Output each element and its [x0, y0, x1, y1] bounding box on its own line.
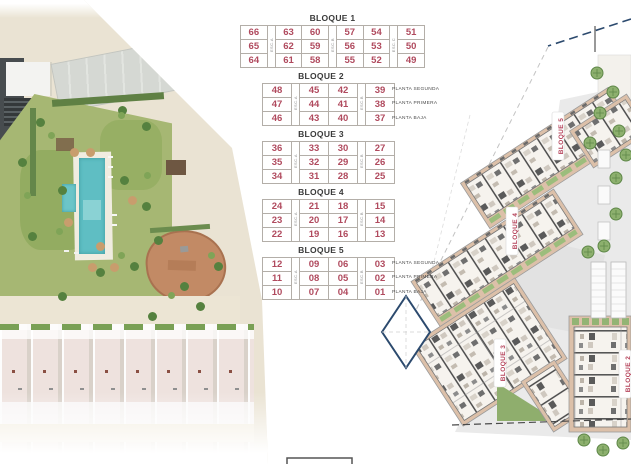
unit-number-cell: 10: [263, 286, 292, 300]
unit-number-cell: 62: [275, 40, 302, 54]
unit-number-cell: 25: [366, 170, 395, 184]
palm-trees: [36, 118, 45, 127]
plan-bloque-2-label: BLOQUE 2: [625, 356, 631, 392]
trees: [578, 67, 631, 456]
unit-number-cell: 55: [336, 54, 363, 68]
plot-boundary-dashed: [432, 115, 470, 270]
unit-number-cell: 13: [366, 228, 395, 242]
stair-column: ESC.B: [358, 258, 366, 300]
unit-number-cell: 53: [363, 40, 390, 54]
unit-number-cell: 47: [263, 98, 292, 112]
unit-number-cell: 17: [329, 214, 358, 228]
stair-label: ESC.A: [268, 38, 275, 52]
unit-number-cell: 42: [329, 84, 358, 98]
stair-column: ESC.C: [390, 26, 398, 68]
unit-number-cell: 30: [329, 142, 358, 156]
palm-trees: [48, 132, 55, 139]
unit-number-cell: 39: [366, 84, 395, 98]
unit-number-cell: 44: [300, 98, 329, 112]
floor-label: PLANTA PRIMERA: [392, 271, 439, 285]
stair-column: ESC.A: [292, 84, 300, 126]
unit-number-cell: 63: [275, 26, 302, 40]
stair-label: ESC.B: [358, 154, 365, 168]
unit-number-cell: 29: [329, 156, 358, 170]
floor-labels: PLANTA SEGUNDAPLANTA PRIMERAPLANTA BAJA: [392, 257, 439, 300]
parking-area: [591, 150, 626, 318]
unit-number-cell: 27: [366, 142, 395, 156]
unit-number-cell: 08: [300, 272, 329, 286]
stair-label: ESC.C: [390, 38, 397, 52]
bloque-table-group: BLOQUE 336ESC.A3330ESC.B2735322926343128…: [240, 129, 425, 184]
stair-label: ESC.A: [292, 270, 299, 284]
roads: [455, 55, 631, 440]
unit-number-cell: 23: [263, 214, 292, 228]
hedges: [572, 318, 629, 325]
plot-diamond: [382, 296, 430, 368]
floor-labels: PLANTA SEGUNDAPLANTA PRIMERAPLANTA BAJA: [392, 83, 439, 126]
aerial-render: [0, 0, 270, 464]
unit-number-cell: 32: [300, 156, 329, 170]
unit-number-cell: 19: [300, 228, 329, 242]
unit-number-cell: 48: [263, 84, 292, 98]
parasols: [70, 148, 79, 157]
unit-number-cell: 45: [300, 84, 329, 98]
unit-number-cell: 59: [302, 40, 329, 54]
unit-number-cell: 64: [241, 54, 268, 68]
bloque-3-building: [411, 278, 567, 426]
unit-number-cell: 40: [329, 112, 358, 126]
unit-number-cell: 28: [329, 170, 358, 184]
bloque-table-group: BLOQUE 424ESC.A2118ESC.B1523201714221916…: [240, 187, 425, 242]
building-roof: [6, 62, 52, 96]
stair-label: ESC.A: [292, 212, 299, 226]
stair-label: ESC.B: [329, 38, 336, 52]
bloque-3-wing: [521, 360, 587, 432]
plot-rectangle: [287, 458, 352, 464]
bloque-unit-table: 12ESC.A0906ESC.B031108050210070401: [262, 257, 395, 300]
floor-label: PLANTA SEGUNDA: [392, 83, 439, 97]
unit-number-cell: 34: [263, 170, 292, 184]
unit-number-cell: 61: [275, 54, 302, 68]
unit-number-cell: 43: [300, 112, 329, 126]
unit-number-cell: 06: [329, 258, 358, 272]
stair-label: ESC.B: [358, 212, 365, 226]
unit-number-cell: 35: [263, 156, 292, 170]
unit-number-cell: 22: [263, 228, 292, 242]
bloque-title: BLOQUE 3: [262, 129, 380, 141]
unit-number-cell: 20: [300, 214, 329, 228]
pergola: [166, 160, 186, 175]
floor-label: PLANTA BAJA: [392, 112, 439, 126]
stair-column: ESC.B: [358, 84, 366, 126]
unit-number-cell: 24: [263, 200, 292, 214]
bloque-unit-table: 48ESC.A4542ESC.B394744413846434037: [262, 83, 395, 126]
unit-number-cell: 14: [366, 214, 395, 228]
bloque-title: BLOQUE 5: [262, 245, 380, 257]
unit-number-cell: 21: [300, 200, 329, 214]
stair-column: ESC.B: [328, 26, 336, 68]
unit-number-cell: 18: [329, 200, 358, 214]
stair-label: ESC.B: [358, 270, 365, 284]
unit-number-cell: 03: [366, 258, 395, 272]
bloque-title: BLOQUE 2: [262, 71, 380, 83]
stair-label: ESC.B: [358, 96, 365, 110]
plan-bloque-labels: BLOQUE 5 BLOQUE 4 BLOQUE 3 BLOQUE 2: [494, 112, 631, 398]
unit-number-cell: 41: [329, 98, 358, 112]
bloque-table-group: BLOQUE 512ESC.A0906ESC.B0311080502100704…: [240, 245, 425, 300]
stair-column: ESC.A: [292, 258, 300, 300]
bloque-title: BLOQUE 4: [262, 187, 380, 199]
sand-path: [0, 296, 240, 326]
unit-number-cell: 65: [241, 40, 268, 54]
bloque-5-wing: [570, 94, 631, 168]
bloque-unit-table: 66ESC.A6360ESC.B5754ESC.C516562595653506…: [240, 25, 425, 68]
unit-number-cell: 56: [336, 40, 363, 54]
unit-number-cell: 66: [241, 26, 268, 40]
terrace-furniture: [12, 370, 15, 373]
plan-bloque-5-label: BLOQUE 5: [558, 118, 565, 154]
unit-number-cell: 54: [363, 26, 390, 40]
unit-number-cell: 16: [329, 228, 358, 242]
unit-number-cell: 04: [329, 286, 358, 300]
unit-number-cell: 57: [336, 26, 363, 40]
floor-label: PLANTA PRIMERA: [392, 97, 439, 111]
boundary-line-dashed: [452, 419, 631, 425]
unit-number-cell: 33: [300, 142, 329, 156]
stair-label: ESC.A: [292, 96, 299, 110]
bloque-table-group: BLOQUE 166ESC.A6360ESC.B5754ESC.C5165625…: [240, 13, 425, 68]
unit-number-cell: 51: [398, 26, 425, 40]
bloque-title: BLOQUE 1: [240, 13, 425, 25]
pool-shallow-end: [83, 200, 101, 220]
unit-number-cell: 01: [366, 286, 395, 300]
bloque-unit-table: 36ESC.A3330ESC.B273532292634312825: [262, 141, 395, 184]
unit-number-cell: 31: [300, 170, 329, 184]
bottom-fade: [0, 392, 270, 464]
plan-bloque-3-label: BLOQUE 3: [500, 345, 507, 381]
kids-pool: [62, 184, 76, 212]
unit-number-cell: 37: [366, 112, 395, 126]
site-plan-page: BLOQUE 5 BLOQUE 4 BLOQUE 3 BLOQUE 2 BLOQ…: [0, 0, 631, 464]
bloque-2-building: [569, 316, 631, 432]
unit-number-cell: 09: [300, 258, 329, 272]
sun-loungers: [108, 156, 113, 158]
unit-number-cell: 02: [366, 272, 395, 286]
unit-number-cell: 11: [263, 272, 292, 286]
unit-number-cell: 38: [366, 98, 395, 112]
stair-column: ESC.B: [358, 200, 366, 242]
stair-label: ESC.A: [292, 154, 299, 168]
unit-number-cell: 49: [398, 54, 425, 68]
stair-column: ESC.A: [267, 26, 275, 68]
unit-number-cell: 15: [366, 200, 395, 214]
bloque-table-group: BLOQUE 248ESC.A4542ESC.B3947444138464340…: [240, 71, 425, 126]
playground-equipment: [180, 246, 189, 253]
top-fade: [0, 0, 270, 18]
unit-number-cell: 12: [263, 258, 292, 272]
stair-column: ESC.A: [292, 142, 300, 184]
stair-column: ESC.A: [292, 200, 300, 242]
playground-equipment: [168, 260, 196, 271]
roof-strip: [0, 330, 254, 339]
unit-number-cell: 07: [300, 286, 329, 300]
stair-column: ESC.B: [358, 142, 366, 184]
unit-number-cell: 46: [263, 112, 292, 126]
boundary-line-blue: [548, 19, 631, 46]
unit-number-cell: 36: [263, 142, 292, 156]
bloque-5-building: [460, 87, 631, 228]
unit-number-cell: 05: [329, 272, 358, 286]
unit-number-cell: 52: [363, 54, 390, 68]
unit-number-cell: 50: [398, 40, 425, 54]
unit-number-cell: 60: [302, 26, 329, 40]
floor-label: PLANTA BAJA: [392, 286, 439, 300]
plan-bloque-4-label: BLOQUE 4: [512, 213, 519, 249]
green-area: [497, 383, 557, 421]
unit-number-cell: 26: [366, 156, 395, 170]
bloque-unit-table: 24ESC.A2118ESC.B152320171422191613: [262, 199, 395, 242]
terrace-furniture: [18, 388, 22, 390]
floor-label: PLANTA SEGUNDA: [392, 257, 439, 271]
unit-number-cell: 58: [302, 54, 329, 68]
unit-tables-panel: BLOQUE 166ESC.A6360ESC.B5754ESC.C5165625…: [240, 13, 425, 303]
